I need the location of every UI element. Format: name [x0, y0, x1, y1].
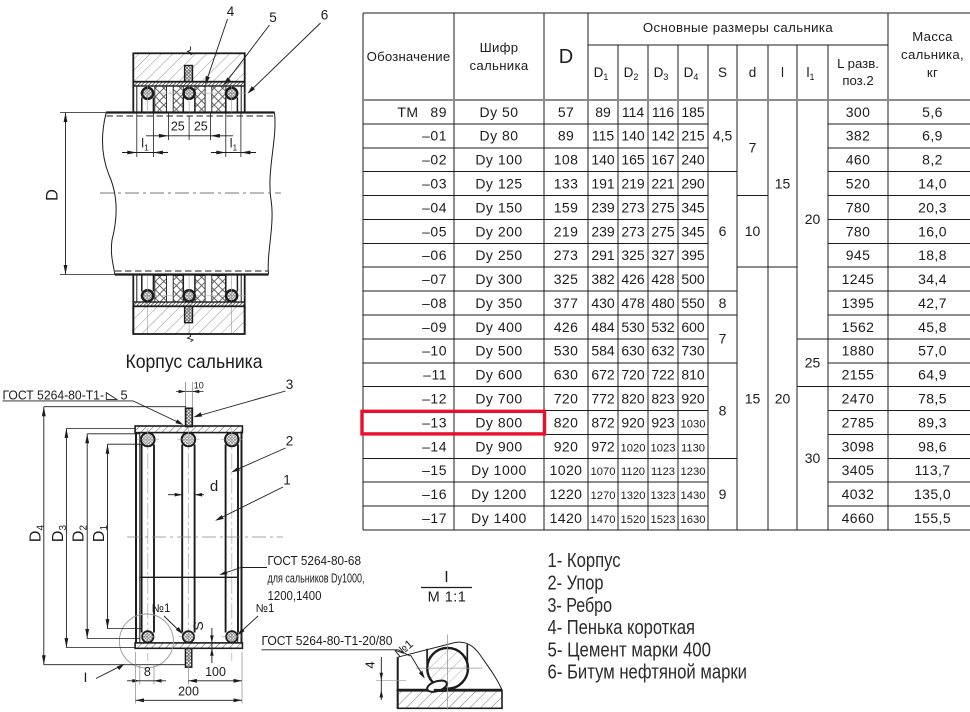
svg-text:–08: –08	[422, 295, 447, 311]
svg-text:Dy 1400: Dy 1400	[471, 510, 527, 526]
svg-text:159: 159	[554, 199, 579, 215]
svg-text:327: 327	[651, 247, 675, 263]
svg-text:165: 165	[621, 152, 645, 168]
svg-text:1220: 1220	[550, 486, 583, 502]
svg-text:18,8: 18,8	[918, 247, 947, 263]
svg-text:484: 484	[591, 319, 615, 335]
svg-text:730: 730	[681, 343, 705, 359]
svg-text:1230: 1230	[681, 466, 706, 478]
svg-text:600: 600	[681, 319, 705, 335]
svg-text:Dy 1200: Dy 1200	[471, 486, 527, 502]
svg-text:1520: 1520	[621, 514, 646, 526]
svg-text:1030: 1030	[681, 418, 706, 430]
svg-text:l1: l1	[141, 137, 149, 153]
svg-text:l: l	[781, 65, 784, 80]
svg-text:D2: D2	[71, 525, 90, 543]
svg-text:820: 820	[621, 391, 645, 407]
svg-text:сальника,: сальника,	[901, 47, 964, 62]
svg-text:1130: 1130	[681, 442, 705, 454]
svg-text:98,6: 98,6	[918, 438, 947, 454]
svg-text:1323: 1323	[651, 490, 676, 502]
svg-text:l1: l1	[230, 137, 238, 153]
svg-text:–16: –16	[422, 486, 447, 502]
svg-text:45,8: 45,8	[918, 319, 947, 335]
svg-text:34,4: 34,4	[918, 271, 947, 287]
svg-text:100: 100	[205, 665, 226, 679]
svg-text:430: 430	[591, 295, 615, 311]
svg-text:140: 140	[621, 128, 645, 144]
svg-text:ГОСТ 5264-80-Т1-: ГОСТ 5264-80-Т1-	[3, 388, 105, 403]
svg-text:89,3: 89,3	[918, 414, 947, 430]
svg-text:1395: 1395	[842, 295, 875, 311]
svg-text:15: 15	[745, 390, 761, 406]
svg-text:–13: –13	[422, 414, 447, 430]
svg-text:672: 672	[591, 367, 615, 383]
svg-text:630: 630	[554, 367, 579, 383]
svg-text:185: 185	[681, 104, 705, 120]
svg-text:239: 239	[591, 199, 615, 215]
svg-text:113,7: 113,7	[915, 462, 951, 478]
svg-text:Dy 150: Dy 150	[475, 199, 522, 215]
svg-text:823: 823	[651, 391, 675, 407]
svg-text:42,7: 42,7	[918, 295, 947, 311]
svg-text:I: I	[444, 569, 448, 586]
svg-text:–05: –05	[422, 223, 447, 239]
svg-text:1020: 1020	[621, 442, 646, 454]
svg-text:30: 30	[805, 450, 821, 466]
svg-text:Dy 1000: Dy 1000	[471, 462, 527, 478]
svg-text:325: 325	[621, 247, 645, 263]
svg-text:S: S	[190, 621, 206, 630]
svg-text:200: 200	[178, 685, 199, 699]
svg-text:2785: 2785	[842, 414, 875, 430]
svg-text:–17: –17	[422, 510, 447, 526]
svg-text:923: 923	[651, 414, 675, 430]
svg-text:25: 25	[194, 120, 208, 134]
svg-text:8: 8	[144, 665, 151, 679]
svg-text:D4: D4	[27, 525, 46, 543]
svg-text:720: 720	[621, 367, 645, 383]
svg-text:–12: –12	[422, 391, 447, 407]
svg-text:для сальников Dy1000,: для сальников Dy1000,	[268, 571, 365, 586]
svg-text:ТМ 89: ТМ 89	[397, 104, 447, 120]
svg-text:Dy 300: Dy 300	[475, 271, 522, 287]
svg-text:1562: 1562	[842, 319, 875, 335]
svg-text:D3: D3	[654, 65, 669, 82]
svg-text:972: 972	[591, 438, 615, 454]
svg-text:1245: 1245	[842, 271, 875, 287]
svg-text:191: 191	[591, 176, 615, 192]
svg-text:1020: 1020	[550, 462, 583, 478]
svg-text:7: 7	[749, 140, 757, 156]
svg-text:14,0: 14,0	[918, 176, 947, 192]
svg-text:520: 520	[846, 176, 871, 192]
svg-text:155,5: 155,5	[914, 510, 951, 526]
svg-text:–02: –02	[422, 152, 447, 168]
svg-text:№1: №1	[392, 637, 416, 660]
svg-text:20: 20	[775, 390, 791, 406]
svg-text:500: 500	[681, 271, 705, 287]
svg-text:108: 108	[554, 152, 579, 168]
svg-text:Dy 900: Dy 900	[475, 438, 522, 454]
svg-text:Корпус сальника: Корпус сальника	[126, 351, 263, 373]
svg-text:1470: 1470	[591, 514, 616, 526]
svg-text:ГОСТ 5264-80-Т1-20/80: ГОСТ 5264-80-Т1-20/80	[262, 633, 393, 648]
svg-text:Dy 400: Dy 400	[475, 319, 522, 335]
svg-text:325: 325	[554, 271, 579, 287]
svg-text:20,3: 20,3	[918, 199, 947, 215]
svg-text:1- Корпус: 1- Корпус	[548, 550, 621, 572]
svg-text:780: 780	[846, 223, 871, 239]
svg-text:Dy 700: Dy 700	[475, 391, 522, 407]
svg-text:530: 530	[554, 343, 579, 359]
svg-text:4- Пенька короткая: 4- Пенька короткая	[548, 617, 696, 639]
svg-text:3: 3	[286, 377, 294, 392]
svg-text:3- Ребро: 3- Ребро	[548, 595, 613, 617]
svg-text:3405: 3405	[842, 462, 875, 478]
svg-text:116: 116	[652, 104, 675, 120]
svg-text:5- Цемент марки 400: 5- Цемент марки 400	[548, 639, 712, 661]
svg-text:D3: D3	[50, 525, 69, 543]
svg-text:S: S	[718, 65, 727, 80]
svg-text:4: 4	[363, 661, 378, 668]
svg-text:1420: 1420	[550, 510, 583, 526]
svg-text:1120: 1120	[621, 466, 645, 478]
svg-text:382: 382	[846, 128, 871, 144]
svg-text:D1: D1	[594, 65, 609, 82]
svg-text:3098: 3098	[842, 438, 875, 454]
svg-text:810: 810	[681, 367, 705, 383]
svg-text:64,9: 64,9	[918, 367, 947, 383]
svg-text:1070: 1070	[591, 466, 616, 478]
svg-text:Dy 80: Dy 80	[479, 128, 518, 144]
svg-text:428: 428	[651, 271, 675, 287]
svg-text:630: 630	[621, 343, 645, 359]
svg-text:275: 275	[651, 199, 675, 215]
svg-text:L разв.: L разв.	[837, 56, 879, 71]
svg-text:d: d	[749, 65, 757, 80]
svg-text:Масса: Масса	[912, 29, 953, 44]
svg-text:215: 215	[681, 128, 705, 144]
svg-text:780: 780	[846, 199, 871, 215]
svg-text:5,6: 5,6	[922, 104, 943, 120]
svg-text:1270: 1270	[591, 490, 616, 502]
svg-text:D1: D1	[91, 525, 110, 543]
svg-text:–11: –11	[423, 367, 447, 383]
svg-text:135,0: 135,0	[914, 486, 951, 502]
svg-text:57: 57	[558, 104, 574, 120]
svg-text:сальника: сальника	[470, 58, 529, 73]
svg-text:–07: –07	[422, 271, 447, 287]
svg-text:219: 219	[621, 176, 645, 192]
svg-text:6,9: 6,9	[922, 128, 943, 144]
svg-text:532: 532	[651, 319, 675, 335]
svg-text:1200,1400: 1200,1400	[268, 588, 322, 603]
svg-text:D4: D4	[684, 65, 699, 82]
svg-text:D: D	[559, 46, 573, 68]
svg-text:10: 10	[194, 381, 204, 391]
svg-text:133: 133	[554, 176, 579, 192]
svg-text:Dy 500: Dy 500	[475, 343, 522, 359]
svg-text:275: 275	[651, 223, 675, 239]
svg-text:1523: 1523	[651, 514, 676, 526]
svg-text:872: 872	[591, 414, 615, 430]
svg-text:1430: 1430	[681, 490, 706, 502]
svg-text:–01: –01	[422, 128, 447, 144]
svg-text:240: 240	[681, 152, 705, 168]
svg-text:8: 8	[719, 295, 727, 311]
svg-text:l1: l1	[806, 65, 814, 82]
svg-text:D2: D2	[624, 65, 639, 82]
svg-text:Dy 600: Dy 600	[475, 367, 522, 383]
svg-text:1023: 1023	[651, 442, 676, 454]
svg-text:1880: 1880	[842, 343, 875, 359]
svg-text:584: 584	[591, 343, 615, 359]
svg-text:25: 25	[805, 355, 821, 371]
svg-text:4: 4	[227, 4, 235, 19]
svg-text:2- Упор: 2- Упор	[548, 573, 604, 595]
svg-text:5: 5	[269, 10, 277, 25]
svg-text:6- Битум нефтяной марки: 6- Битум нефтяной марки	[548, 662, 748, 684]
svg-text:722: 722	[651, 367, 675, 383]
svg-text:273: 273	[621, 199, 645, 215]
svg-text:1320: 1320	[621, 490, 646, 502]
svg-text:М 1:1: М 1:1	[428, 590, 467, 606]
svg-text:920: 920	[681, 391, 705, 407]
svg-text:–09: –09	[422, 319, 447, 335]
svg-text:89: 89	[558, 128, 574, 144]
svg-text:772: 772	[591, 391, 615, 407]
svg-text:290: 290	[681, 176, 705, 192]
svg-text:2155: 2155	[842, 367, 875, 383]
svg-text:–14: –14	[422, 438, 447, 454]
svg-text:10: 10	[745, 223, 761, 239]
svg-text:ГОСТ 5264-80-68: ГОСТ 5264-80-68	[268, 553, 362, 568]
svg-text:632: 632	[651, 343, 675, 359]
svg-text:кг: кг	[927, 65, 938, 80]
svg-text:d: d	[210, 478, 218, 495]
svg-text:530: 530	[621, 319, 645, 335]
svg-text:140: 140	[591, 152, 615, 168]
svg-text:8,2: 8,2	[922, 152, 943, 168]
svg-text:Dy 350: Dy 350	[475, 295, 522, 311]
svg-text:945: 945	[846, 247, 871, 263]
svg-text:25: 25	[171, 120, 185, 134]
svg-text:6: 6	[719, 223, 727, 239]
svg-text:426: 426	[554, 319, 579, 335]
svg-text:550: 550	[681, 295, 705, 311]
svg-text:6: 6	[321, 8, 329, 23]
svg-text:–15: –15	[422, 462, 447, 478]
svg-text:–04: –04	[422, 199, 447, 215]
svg-text:Основные размеры сальника: Основные размеры сальника	[643, 20, 833, 35]
svg-text:7: 7	[719, 331, 727, 347]
svg-text:480: 480	[651, 295, 675, 311]
svg-text:15: 15	[775, 175, 791, 191]
svg-text:D: D	[44, 189, 62, 201]
svg-text:1: 1	[283, 473, 291, 488]
svg-text:1630: 1630	[681, 514, 706, 526]
svg-text:920: 920	[554, 438, 579, 454]
svg-text:2470: 2470	[842, 391, 875, 407]
svg-text:142: 142	[651, 128, 675, 144]
svg-text:2: 2	[286, 434, 294, 449]
svg-text:114: 114	[622, 104, 645, 120]
svg-text:1123: 1123	[651, 466, 675, 478]
svg-text:89: 89	[595, 104, 611, 120]
svg-text:Обозначение: Обозначение	[367, 49, 451, 64]
svg-text:–06: –06	[422, 247, 447, 263]
svg-text:221: 221	[651, 176, 675, 192]
svg-text:273: 273	[621, 223, 645, 239]
svg-text:478: 478	[621, 295, 645, 311]
svg-text:377: 377	[554, 295, 579, 311]
svg-text:78,5: 78,5	[918, 391, 947, 407]
svg-text:4,5: 4,5	[713, 128, 733, 144]
svg-text:Шифр: Шифр	[480, 40, 519, 55]
svg-text:382: 382	[591, 271, 615, 287]
svg-text:–10: –10	[422, 343, 447, 359]
svg-text:20: 20	[805, 211, 821, 227]
svg-text:167: 167	[651, 152, 675, 168]
svg-text:Dy 200: Dy 200	[475, 223, 522, 239]
svg-text:460: 460	[846, 152, 871, 168]
svg-text:920: 920	[621, 414, 645, 430]
svg-text:57,0: 57,0	[918, 343, 947, 359]
svg-text:–03: –03	[422, 176, 447, 192]
svg-text:273: 273	[554, 247, 579, 263]
svg-text:I: I	[84, 669, 88, 685]
svg-text:5: 5	[121, 388, 128, 403]
svg-text:Dy 800: Dy 800	[475, 414, 522, 430]
svg-text:9: 9	[719, 486, 727, 502]
svg-text:395: 395	[681, 247, 705, 263]
svg-text:16,0: 16,0	[918, 223, 947, 239]
svg-text:426: 426	[621, 271, 645, 287]
svg-text:239: 239	[591, 223, 615, 239]
svg-text:720: 720	[554, 391, 579, 407]
svg-text:8: 8	[719, 402, 727, 418]
svg-text:Dy 125: Dy 125	[475, 176, 522, 192]
svg-text:поз.2: поз.2	[842, 73, 873, 88]
svg-text:№1: №1	[256, 603, 275, 615]
svg-text:219: 219	[554, 223, 579, 239]
svg-text:291: 291	[591, 247, 615, 263]
svg-text:345: 345	[681, 223, 705, 239]
svg-text:Dy 100: Dy 100	[475, 152, 522, 168]
svg-text:Dy 50: Dy 50	[479, 104, 518, 120]
svg-text:820: 820	[554, 414, 579, 430]
svg-text:115: 115	[592, 128, 615, 144]
svg-text:4660: 4660	[842, 510, 875, 526]
svg-text:345: 345	[681, 199, 705, 215]
svg-text:4032: 4032	[842, 486, 875, 502]
svg-text:№1: №1	[152, 603, 171, 615]
svg-text:Dy 250: Dy 250	[475, 247, 522, 263]
svg-text:300: 300	[846, 104, 871, 120]
